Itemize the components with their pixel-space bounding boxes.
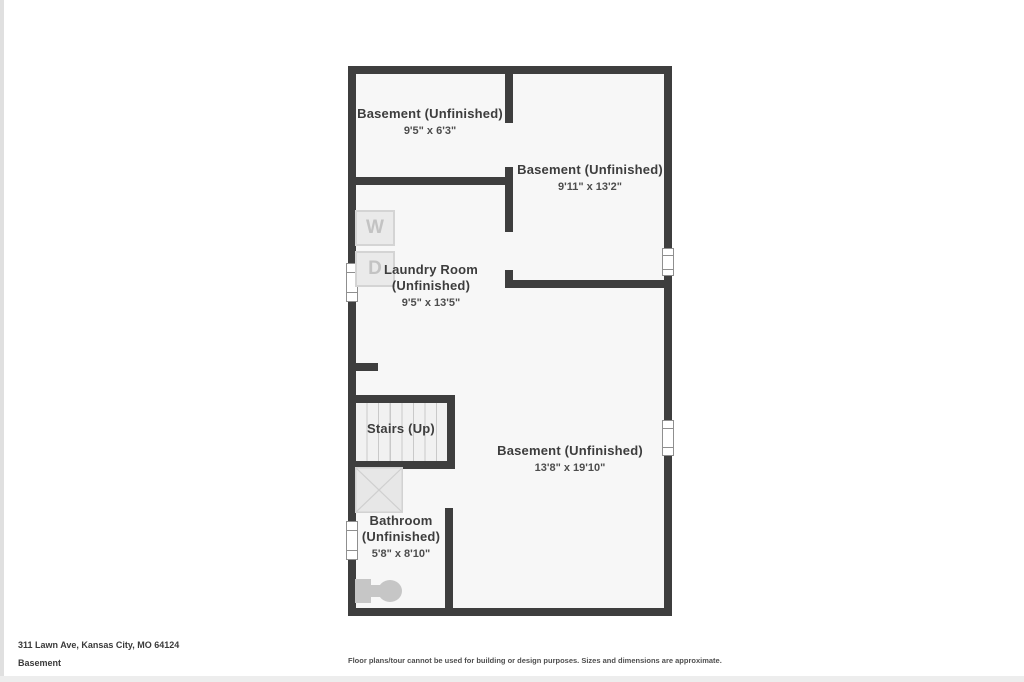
window-pane-line (347, 550, 357, 551)
screen-edge-bottom (0, 676, 1024, 682)
wall-stub-left (356, 363, 378, 371)
shower-fixture (355, 467, 403, 513)
room-dimensions: 13'8" x 19'10" (497, 461, 643, 475)
dryer-letter: D (368, 258, 382, 280)
room-dimensions: 9'11" x 13'2" (517, 180, 663, 194)
toilet-bowl (378, 580, 402, 602)
room-name-line2: (Unfinished) (384, 278, 478, 294)
room-name: Laundry Room (384, 262, 478, 278)
wall-stairs-top (356, 395, 455, 403)
room-label-basement-main: Basement (Unfinished) 13'8" x 19'10" (497, 443, 643, 475)
wall-outer-bottom (348, 608, 672, 616)
wall-outer-top (348, 66, 672, 74)
room-name: Bathroom (362, 513, 440, 529)
wall-outer-right (664, 66, 672, 616)
window-symbol-right-lower (662, 420, 674, 456)
room-name: Basement (Unfinished) (517, 162, 663, 178)
wall-mid-vertical-upper (505, 74, 513, 123)
property-address: 311 Lawn Ave, Kansas City, MO 64124 (18, 640, 179, 650)
window-symbol-left-bathroom (346, 521, 358, 560)
wall-bathroom-right (445, 508, 453, 616)
wall-room2-bottom (505, 280, 664, 288)
window-pane-line (347, 530, 357, 531)
wall-stairs-right (447, 395, 455, 469)
room-dimensions: 9'5" x 13'5" (384, 296, 478, 310)
screen-edge-left (0, 0, 4, 682)
washer-letter: W (366, 217, 384, 239)
room-label-basement-right: Basement (Unfinished) 9'11" x 13'2" (517, 162, 663, 194)
room-name: Basement (Unfinished) (357, 106, 503, 122)
floor-name: Basement (18, 658, 61, 668)
washer-icon: W (355, 210, 395, 246)
room-label-laundry: Laundry Room (Unfinished) 9'5" x 13'5" (384, 262, 478, 310)
room-dimensions: 9'5" x 6'3" (357, 124, 503, 138)
toilet-fixture (355, 577, 403, 605)
disclaimer-text: Floor plans/tour cannot be used for buil… (348, 656, 672, 665)
floor-plan: W D Basement (Unfinished) 9'5" x 6'3" Ba… (348, 66, 672, 616)
room-name-line2: (Unfinished) (362, 529, 440, 545)
window-pane-line (663, 255, 673, 256)
window-pane-line (663, 447, 673, 448)
room-dimensions: 5'8" x 8'10" (362, 547, 440, 561)
room-label-stairs: Stairs (Up) (367, 421, 435, 437)
room-label-basement-top-left: Basement (Unfinished) 9'5" x 6'3" (357, 106, 503, 138)
window-pane-line (663, 428, 673, 429)
window-pane-line (347, 292, 357, 293)
room-label-bathroom: Bathroom (Unfinished) 5'8" x 8'10" (362, 513, 440, 561)
wall-room1-bottom (356, 177, 513, 185)
room-name: Stairs (Up) (367, 421, 435, 437)
window-symbol-right-upper (662, 248, 674, 276)
window-pane-line (663, 269, 673, 270)
room-name: Basement (Unfinished) (497, 443, 643, 459)
